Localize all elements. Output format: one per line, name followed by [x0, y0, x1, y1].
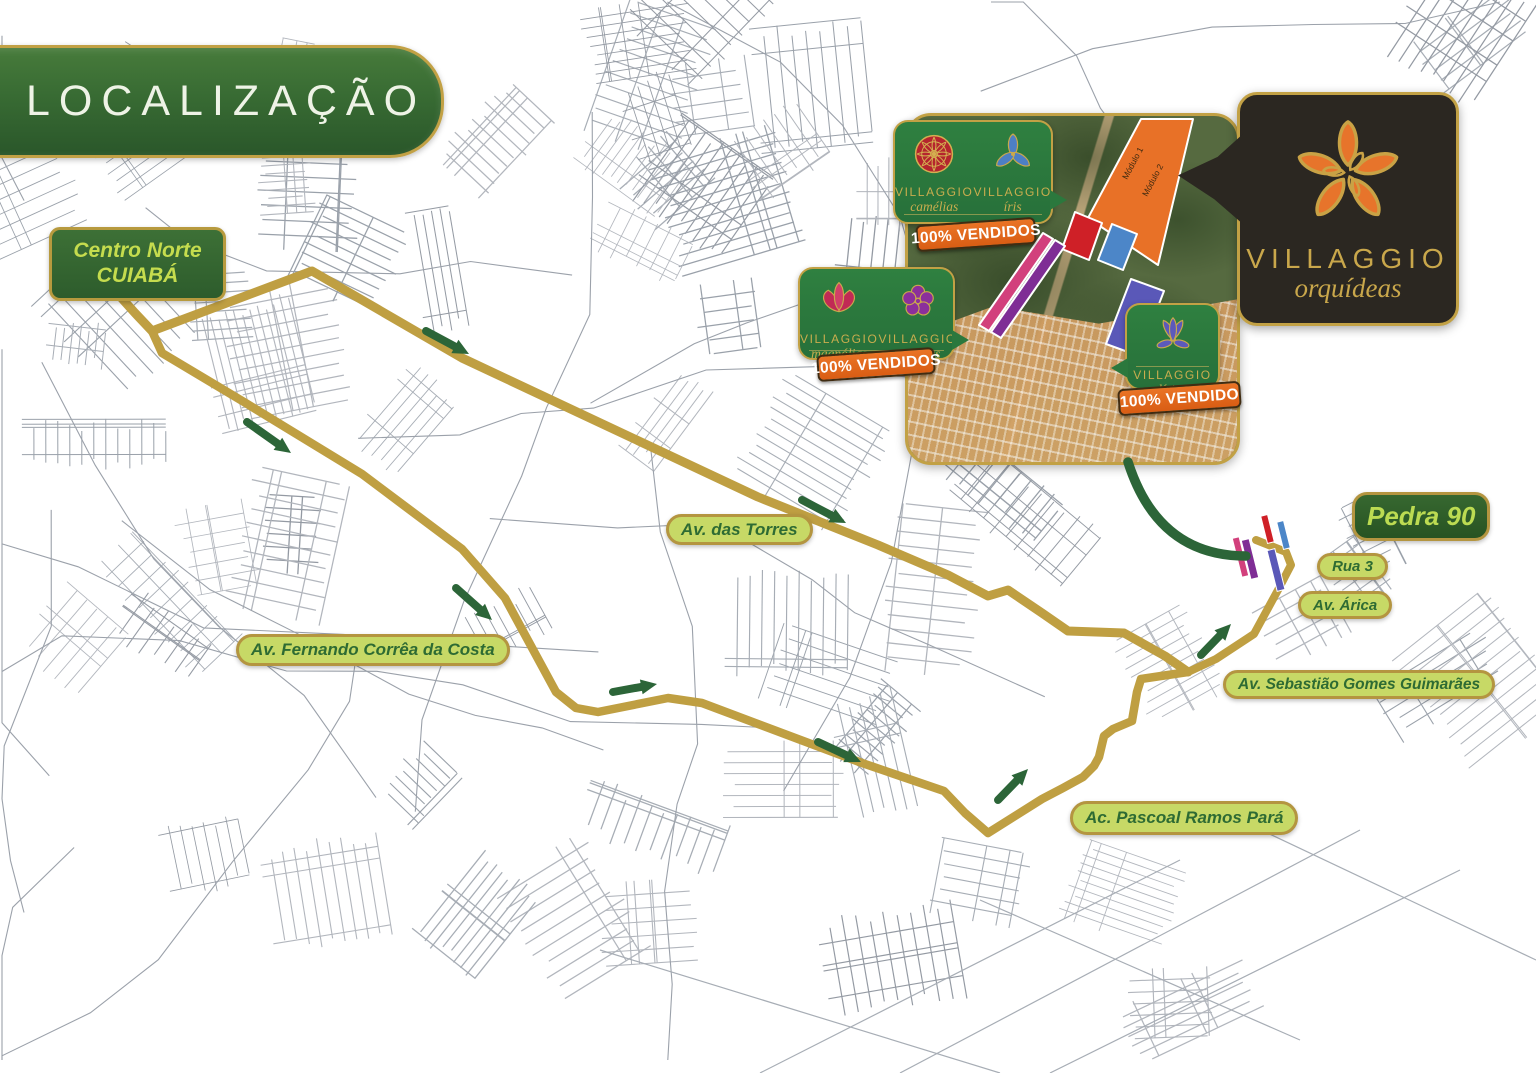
violet-icon [895, 278, 941, 329]
page-title: LOCALIZAÇÃO [0, 77, 426, 126]
road-label-av-das-torres: Av. das Torres [666, 514, 813, 545]
direction-arrow [1201, 624, 1231, 655]
dev-strip [1277, 521, 1291, 550]
location-map-page: Módulo 1Módulo 2 LOCALIZAÇÃO Centro Nort… [0, 0, 1536, 1073]
origin-line2: CUIABÁ [97, 264, 179, 289]
brand-bubble-magnolias-violetas: VILLAGGIOmagnólias VILLAGGIOviolettas [798, 267, 955, 360]
development-strips [1232, 515, 1290, 592]
orchid-icon [1289, 114, 1407, 237]
brand-name: VILLAGGIO [895, 185, 973, 199]
road-label-ac-pascoal: Ac. Pascoal Ramos Pará [1070, 801, 1298, 835]
dev-strip [1232, 537, 1248, 578]
road-label-av-fernando: Av. Fernando Corrêa da Costa [236, 634, 510, 666]
brand-bubble-lirios: VILLAGGIOlírios [1125, 303, 1220, 390]
dev-strip [1267, 549, 1285, 592]
road-label-rua-3: Rua 3 [1317, 553, 1388, 580]
page-title-banner: LOCALIZAÇÃO [0, 45, 444, 158]
villaggio-orquideas-logo-badge: VILLAGGIO orquídeas [1237, 92, 1459, 326]
brand-íris: VILLAGGIOíris [973, 131, 1051, 215]
logo-brand-name: VILLAGGIO [1246, 243, 1449, 275]
bubble-divider [904, 214, 1042, 215]
dev-strip [1261, 515, 1275, 544]
road-label-pedra-90: Pedra 90 [1352, 492, 1490, 541]
direction-arrow [613, 680, 657, 695]
brand-name: VILLAGGIO [800, 332, 878, 346]
route-pedra90-access [1188, 540, 1291, 672]
direction-arrow [247, 422, 291, 453]
inset-pointer-arc [1128, 462, 1246, 556]
brand-name: VILLAGGIO [1133, 368, 1211, 382]
logo-product-name: orquídeas [1295, 273, 1402, 304]
brand-bubble-camelias-iris: VILLAGGIOcamélias VILLAGGIOíris [893, 120, 1053, 224]
direction-arrow [998, 769, 1028, 800]
origin-badge-centro-norte: Centro Norte CUIABÁ [49, 227, 226, 301]
brand-name: VILLAGGIO [878, 332, 956, 346]
lily-icon [1150, 314, 1196, 365]
bubble-divider [1136, 366, 1209, 367]
direction-arrow [818, 742, 861, 762]
origin-line1: Centro Norte [73, 239, 201, 264]
camelia-icon [911, 131, 957, 182]
road-label-av-sebastiao: Av. Sebastião Gomes Guimarães [1223, 670, 1495, 699]
brand-flower-name: camélias [910, 199, 958, 215]
dev-strip [1241, 539, 1258, 580]
direction-arrow [456, 588, 492, 620]
brand-flower-name: íris [1004, 199, 1022, 215]
direction-arrow [426, 331, 469, 354]
iris-icon [990, 131, 1036, 182]
magnolia-icon [816, 278, 862, 329]
road-label-av-arica: Av. Árica [1298, 591, 1392, 619]
brand-camélias: VILLAGGIOcamélias [895, 131, 973, 215]
parcel-blue [1098, 224, 1137, 270]
brand-name: VILLAGGIO [973, 185, 1051, 199]
